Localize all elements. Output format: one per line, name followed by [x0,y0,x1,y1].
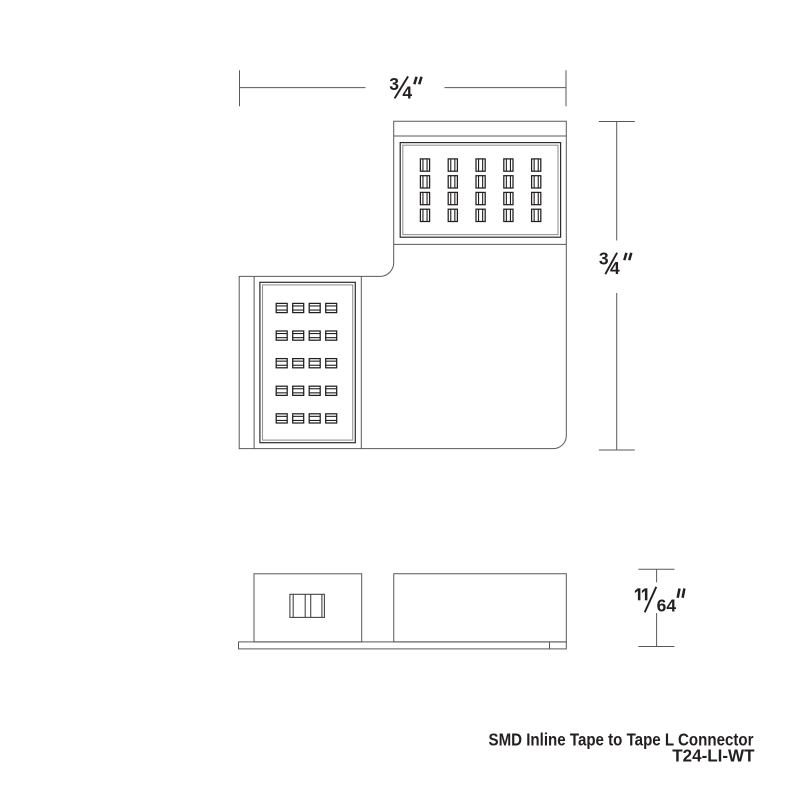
svg-text:3: 3 [389,74,399,94]
svg-text:64: 64 [657,596,677,616]
svg-text:3: 3 [599,249,609,269]
svg-text:4: 4 [402,83,412,103]
svg-text:T24-LI-WT: T24-LI-WT [672,745,754,765]
